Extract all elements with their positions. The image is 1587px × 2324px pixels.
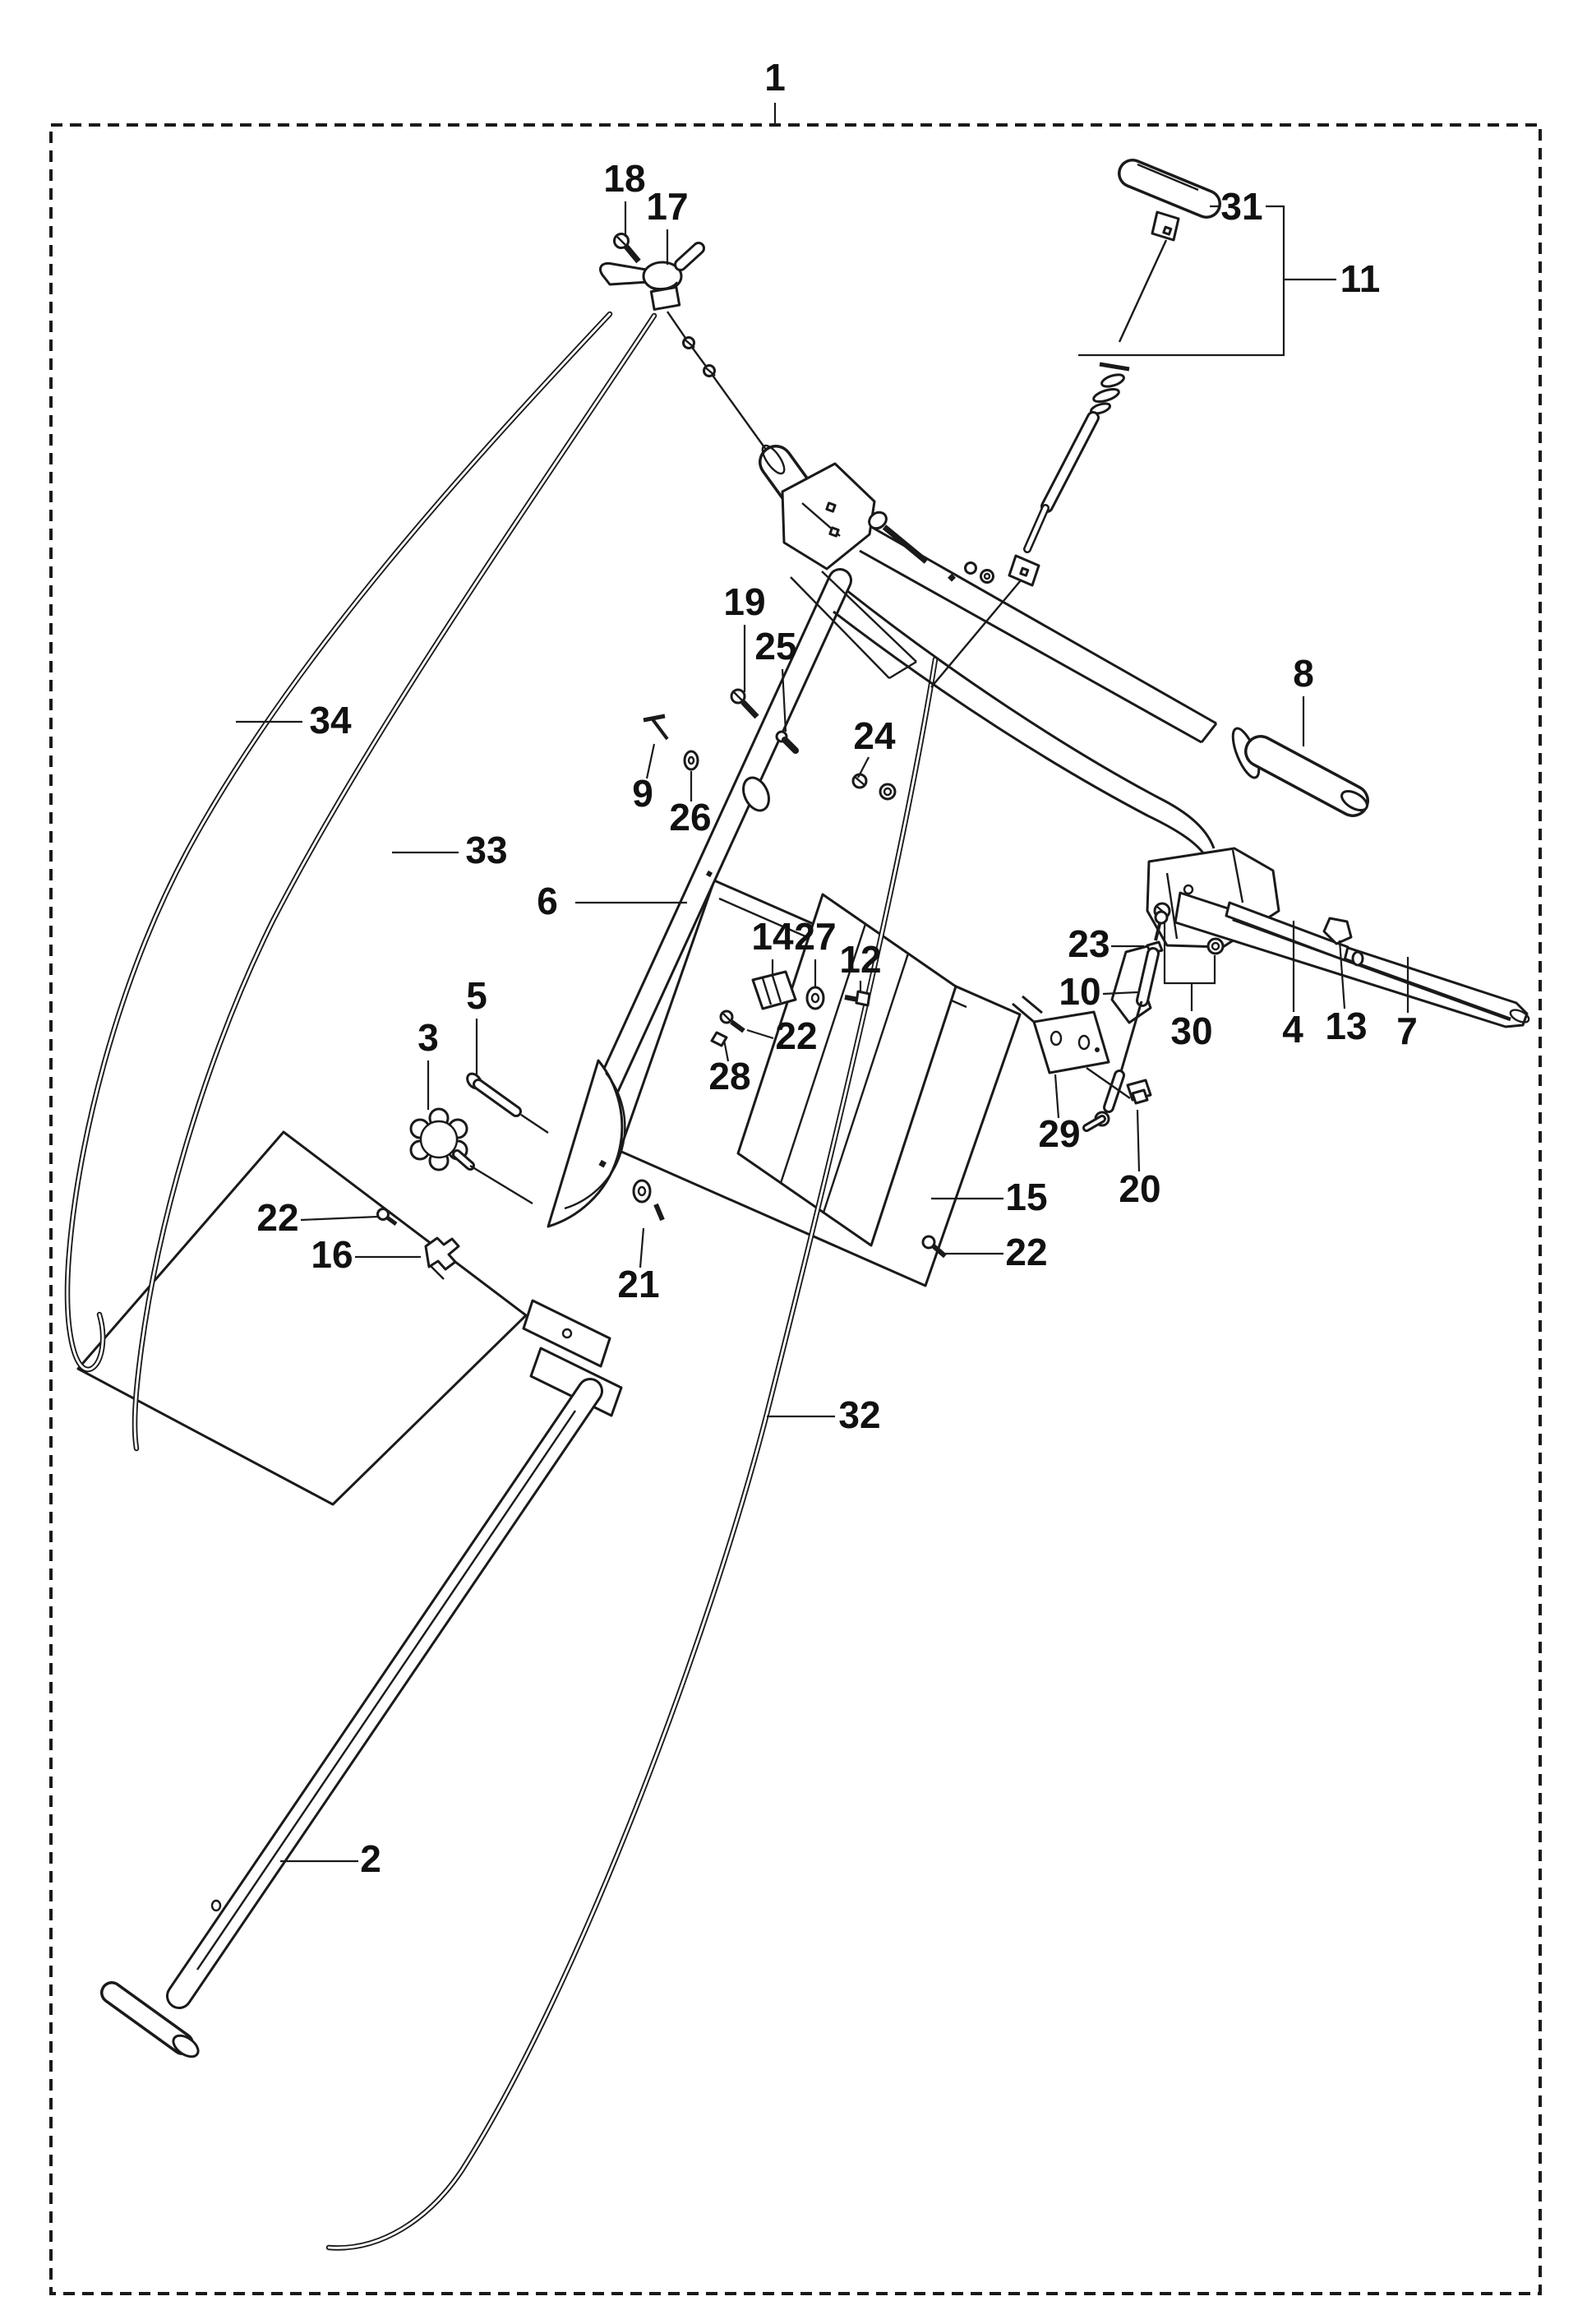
screw-18-shaft [626, 247, 639, 261]
callout-label-33: 33 [465, 829, 507, 871]
callout-label-10: 10 [1059, 970, 1100, 1013]
knob-31-stem-hole [1164, 227, 1171, 234]
star-knob-3 [411, 1109, 533, 1204]
upper-bar-top-edge [873, 528, 1216, 723]
callout-label-5: 5 [466, 974, 487, 1017]
callout-label-16: 16 [311, 1233, 353, 1276]
slide-end-piece [1353, 952, 1363, 965]
callout-label-32: 32 [838, 1393, 880, 1436]
screw-22c-head [378, 1209, 389, 1220]
bolt-5-body-inner [478, 1084, 516, 1111]
cable-clip-b [704, 366, 716, 377]
callout-21: 21 [617, 1228, 659, 1305]
cable-32 [329, 659, 935, 2248]
rod-11-clamp-hole [1021, 568, 1028, 575]
nut-20 [1128, 1080, 1151, 1103]
callout-label-19: 19 [723, 580, 765, 623]
clamp-plate-1 [524, 1301, 610, 1366]
callout-24: 24 [853, 714, 896, 778]
callout-label-13: 13 [1325, 1005, 1367, 1047]
parts-diagram-page: 1 18 17 31 11 8 19 25 9 [0, 0, 1587, 2324]
callout-label-30: 30 [1170, 1010, 1212, 1052]
bracket-bolt-set [866, 509, 994, 582]
washer-screw-21 [634, 1180, 662, 1220]
rod-11-upper-wire [1119, 240, 1166, 342]
bracket-hole-2 [830, 528, 838, 536]
callout-22b: 22 [945, 1231, 1048, 1273]
callout-3: 3 [418, 1016, 439, 1110]
callout-label-3: 3 [418, 1016, 439, 1059]
bracket-29-dot [1095, 1047, 1100, 1052]
leader-line-20 [1137, 1110, 1139, 1171]
leader-line-21 [640, 1228, 644, 1268]
callout-18: 18 [603, 157, 645, 237]
screw-19-shaft [743, 702, 757, 717]
callout-6: 6 [537, 880, 687, 922]
callout-label-14: 14 [751, 915, 794, 958]
callout-label-28: 28 [708, 1055, 750, 1097]
callout-label-6: 6 [537, 880, 558, 922]
callout-label-15: 15 [1005, 1176, 1047, 1218]
callout-label-1: 1 [764, 56, 786, 99]
rod-11-cross-pin [1100, 364, 1129, 369]
callout-label-29: 29 [1038, 1112, 1080, 1155]
exploded-view-diagram: 1 18 17 31 11 8 19 25 9 [0, 0, 1587, 2324]
clip-16-body [426, 1238, 459, 1269]
nut-30-right [1208, 939, 1223, 954]
callout-1: 1 [764, 56, 786, 123]
washer-26 [685, 751, 698, 769]
pin-25-body [785, 740, 796, 751]
screw-22b-head [923, 1236, 934, 1248]
callout-label-22b: 22 [1005, 1231, 1047, 1273]
screw-19 [731, 690, 757, 717]
callout-34: 34 [236, 699, 352, 742]
t-pin-9 [644, 716, 667, 739]
callout-11: 11 [1340, 257, 1381, 300]
callout-label-7: 7 [1396, 1010, 1418, 1052]
washer-21 [634, 1180, 650, 1202]
pin-21 [656, 1204, 662, 1220]
rod-11-washer-1 [1100, 372, 1125, 389]
hardware-24 [853, 774, 895, 799]
bracket-hole-1 [827, 503, 835, 511]
nut-20-body [1133, 1090, 1147, 1103]
bracket-29-plate [1034, 1012, 1109, 1073]
small-screw-head [966, 563, 976, 574]
throttle-wire [667, 312, 768, 453]
cable-32-outline [329, 659, 935, 2248]
bolt-5 [464, 1071, 548, 1133]
callout-label-23: 23 [1068, 922, 1110, 965]
callout-label-22c: 22 [256, 1196, 298, 1239]
t-pin-9-shaft [653, 719, 667, 739]
handle-grip [1228, 725, 1370, 814]
callout-label-18: 18 [603, 157, 645, 200]
washer-27 [807, 987, 823, 1009]
callout-9: 9 [632, 744, 654, 815]
callout-label-25: 25 [754, 625, 796, 668]
callout-26: 26 [669, 771, 711, 839]
callout-label-24: 24 [853, 714, 896, 757]
d-cover-body [548, 1060, 622, 1227]
cable-clip-a [684, 338, 695, 349]
washer-26-body [685, 751, 698, 769]
bolt-5-axis-wire [521, 1115, 548, 1133]
tube-2-highlight [197, 1411, 575, 1970]
callout-17: 17 [646, 185, 688, 265]
rod-11-shaft-inner [1047, 418, 1093, 506]
lower-handle-tube [112, 1391, 590, 2061]
washer-24 [880, 784, 895, 799]
callout-33: 33 [392, 829, 508, 871]
callout-label-17: 17 [646, 185, 688, 228]
callout-8: 8 [1293, 652, 1314, 746]
callout-32: 32 [767, 1393, 881, 1436]
cable-32-core [329, 659, 935, 2248]
throttle-clamp [651, 287, 679, 309]
callout-label-34: 34 [309, 699, 352, 742]
upper-bar-end [1202, 723, 1216, 742]
callout-label-20: 20 [1119, 1167, 1160, 1210]
callout-label-22a: 22 [775, 1014, 817, 1057]
callout-label-2: 2 [360, 1837, 381, 1880]
bracket-29-arm-2 [1022, 996, 1042, 1013]
carriage-bolt-shaft [884, 527, 926, 561]
tube-2-hole [212, 1901, 220, 1910]
knob-3-axis-wire [470, 1166, 533, 1204]
callout-label-9: 9 [632, 772, 653, 815]
callout-label-4: 4 [1282, 1008, 1303, 1051]
small-ring [981, 571, 994, 583]
rod-11-washer-2 [1092, 386, 1120, 404]
rod-11-shaft2-inner [1027, 508, 1045, 549]
leader-line-31-11-bracket [1078, 206, 1336, 355]
callout-20: 20 [1119, 1110, 1160, 1210]
callout-5: 5 [466, 974, 487, 1074]
callout-29: 29 [1038, 1074, 1080, 1155]
pin-25 [777, 732, 796, 751]
callout-label-12: 12 [839, 938, 881, 981]
callout-label-26: 26 [669, 796, 711, 839]
bolt-12-head [856, 991, 870, 1005]
callout-label-31: 31 [1220, 185, 1262, 228]
washer-27-body [807, 987, 823, 1009]
callout-label-11: 11 [1340, 257, 1381, 300]
callout-label-27: 27 [794, 915, 836, 958]
callout-label-21: 21 [617, 1263, 659, 1305]
throttle-control-assembly [600, 234, 699, 310]
callout-label-8: 8 [1293, 652, 1314, 695]
tube-cover [548, 1060, 625, 1227]
adjuster-knob-rod [931, 164, 1206, 687]
